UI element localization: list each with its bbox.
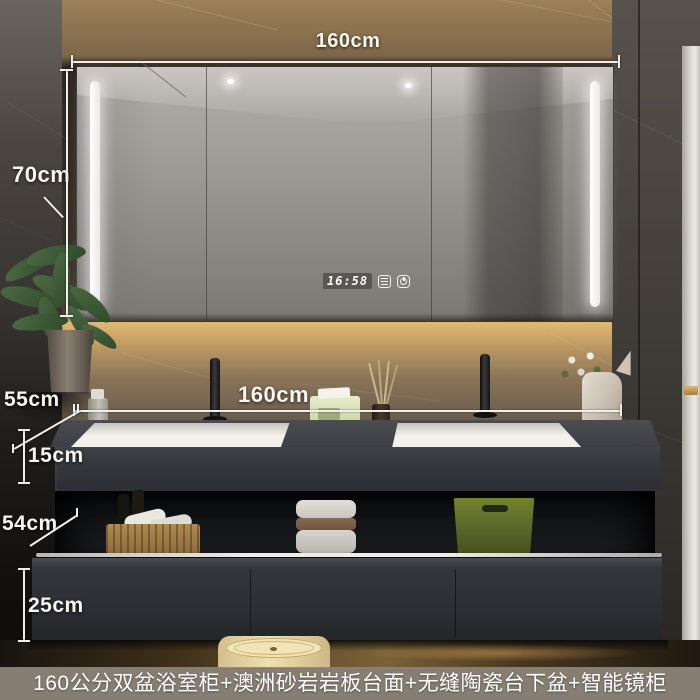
dim-tick xyxy=(60,69,73,71)
shelf-front-lit-edge xyxy=(36,553,662,557)
dim-label-drawer-height: 25cm xyxy=(28,594,84,618)
clock-display: 16:58 xyxy=(323,273,372,289)
door-frame xyxy=(682,46,700,668)
dim-tick xyxy=(18,429,30,431)
defog-icon-lines xyxy=(381,278,388,285)
sink-right xyxy=(392,423,582,448)
led-strip-left xyxy=(90,81,100,307)
defog-icon xyxy=(378,275,391,288)
dim-tick xyxy=(620,404,622,416)
product-caption-text: 160公分双盆浴室柜+澳洲砂岩岩板台面+无缝陶瓷台下盆+智能镜柜 xyxy=(0,667,700,700)
dim-label-mirror-height: 70cm xyxy=(12,162,70,188)
power-icon xyxy=(397,275,410,288)
dim-label-counter-depth: 55cm xyxy=(4,388,60,412)
dim-label-counter-width: 160cm xyxy=(238,382,309,408)
dim-label-mirror-width: 160cm xyxy=(288,30,408,53)
dim-tick xyxy=(18,482,30,484)
dim-line-mirror-width xyxy=(72,61,620,63)
power-icon-bar xyxy=(403,277,405,281)
woven-tray xyxy=(106,524,200,554)
drawer-faces xyxy=(32,567,662,640)
drawer-top-bevel xyxy=(32,558,662,567)
mirror-bottom-shadow xyxy=(77,313,613,321)
drawer-seam xyxy=(250,570,251,637)
soap-dispenser-pump xyxy=(91,389,104,399)
dim-line-mirror-height xyxy=(66,70,68,316)
faucet-right xyxy=(480,354,490,416)
dim-line-counter-width xyxy=(74,410,622,412)
mirror-door-seam xyxy=(431,67,432,321)
bathroom-product-photo: 16:58 xyxy=(0,0,700,700)
drawer-cabinet xyxy=(32,558,662,643)
downlight-reflection xyxy=(405,83,412,88)
dim-line-drawer-height xyxy=(23,569,25,641)
towel-stack-top xyxy=(296,500,356,518)
product-caption-band: 160公分双盆浴室柜+澳洲砂岩岩板台面+无缝陶瓷台下盆+智能镜柜 xyxy=(0,667,700,700)
plant-pot xyxy=(44,330,96,394)
drawer-seam xyxy=(455,570,456,637)
basket-handle-slot xyxy=(482,505,508,512)
dim-label-apron-height: 15cm xyxy=(28,444,84,468)
counter-front-apron xyxy=(55,447,660,491)
dim-tick xyxy=(618,55,620,68)
faucet-right-base xyxy=(473,412,497,418)
dim-tick xyxy=(18,640,30,642)
dim-tick xyxy=(18,568,30,570)
door-handle-gold xyxy=(684,386,698,395)
dim-tick xyxy=(76,508,78,517)
downlight-reflection xyxy=(227,79,234,84)
dim-tick xyxy=(12,444,14,453)
dim-tick xyxy=(71,55,73,68)
dim-line-apron-height xyxy=(23,430,25,484)
towel-stack-bottom xyxy=(296,530,356,553)
sink-left xyxy=(70,423,294,448)
mirror-doorway-reflection xyxy=(463,67,563,321)
mirror-smart-display: 16:58 xyxy=(323,273,410,289)
led-strip-right xyxy=(590,81,600,307)
floor-light-reflection xyxy=(360,644,640,662)
dim-tick xyxy=(77,404,79,413)
dim-tick xyxy=(60,315,73,317)
tissue-sheet xyxy=(318,387,350,399)
trash-can-sensor-dot xyxy=(270,647,277,651)
towel-stack-stripe xyxy=(296,518,356,530)
mirror-door-seam xyxy=(206,67,207,321)
mirror-cabinet: 16:58 xyxy=(76,66,614,322)
